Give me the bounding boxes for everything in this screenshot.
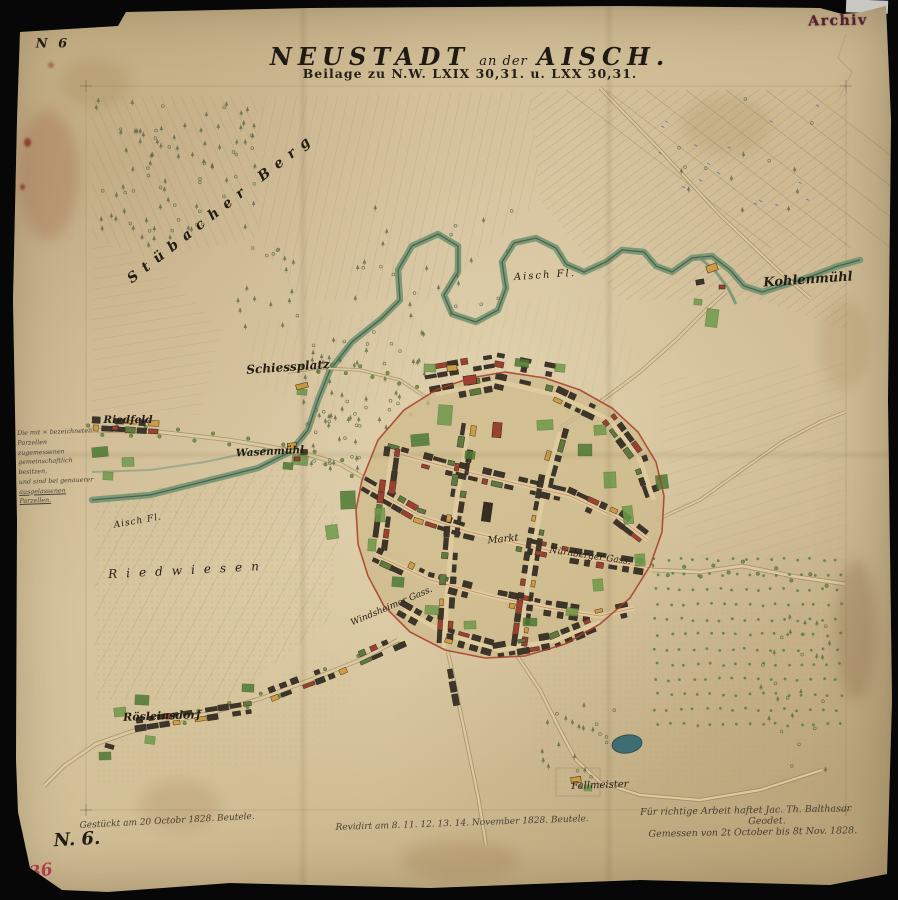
stain xyxy=(18,110,78,240)
footer-note-liability: Für richtige Arbeit haftet Jac. Th. Balt… xyxy=(640,804,857,841)
ink-spot xyxy=(20,184,25,190)
map-sheet: NEUSTADT an der AISCH. Beilage zu N.W. L… xyxy=(0,0,898,900)
margin-note: Die mit × bezeichneten Parzellen zugemes… xyxy=(17,426,96,507)
stain xyxy=(820,300,870,390)
stain xyxy=(836,560,876,700)
scan-background: NEUSTADT an der AISCH. Beilage zu N.W. L… xyxy=(0,0,898,900)
archive-stamp: Archiv xyxy=(808,12,868,29)
paper-crease xyxy=(0,450,898,460)
label-roesleinsdorf: Rösleinsdorf xyxy=(123,709,201,723)
label-riedfeld: Riedfeld xyxy=(103,415,152,426)
label-fallmeister: Fallmeister xyxy=(571,780,628,792)
margin-note-line: Parzellen zugemessenen xyxy=(17,436,94,458)
stain xyxy=(400,840,520,880)
stain xyxy=(680,96,770,156)
ink-spot xyxy=(24,138,31,147)
inventory-number-red: 36 xyxy=(28,862,54,883)
map-subtitle: Beilage zu N.W. LXIX 30,31. u. LXX 30,31… xyxy=(42,66,898,81)
sheet-number-top: N 6 xyxy=(36,38,70,51)
margin-note-line: ausgelassenen Parzellen. xyxy=(19,485,96,507)
margin-note-line: gemeinschaftlich besitzen, xyxy=(18,456,95,478)
